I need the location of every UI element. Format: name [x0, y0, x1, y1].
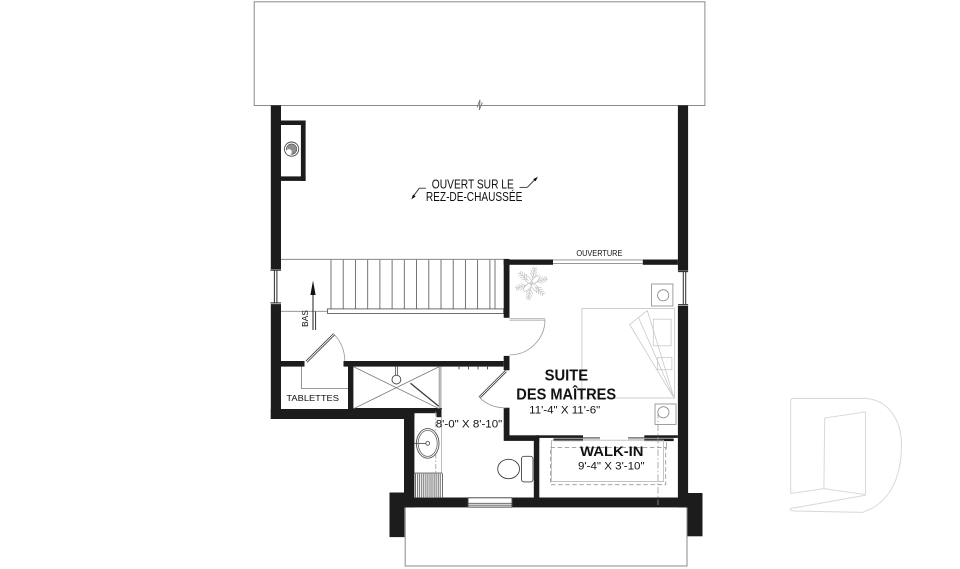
svg-text:DES MAÎTRES: DES MAÎTRES — [516, 386, 616, 404]
svg-text:11'-4" X 11'-6": 11'-4" X 11'-6" — [529, 405, 600, 417]
svg-text:OUVERTURE: OUVERTURE — [576, 248, 622, 258]
svg-text:BAS: BAS — [300, 310, 310, 327]
svg-text:8'-0" X 8'-10": 8'-0" X 8'-10" — [436, 419, 503, 431]
svg-text:TABLETTES: TABLETTES — [286, 393, 339, 403]
svg-text:REZ-DE-CHAUSSÉE: REZ-DE-CHAUSSÉE — [426, 189, 523, 204]
svg-text:SUITE: SUITE — [545, 368, 589, 385]
svg-text:WALK-IN: WALK-IN — [580, 444, 643, 459]
svg-text:9'-4" X 3'-10": 9'-4" X 3'-10" — [578, 460, 645, 472]
